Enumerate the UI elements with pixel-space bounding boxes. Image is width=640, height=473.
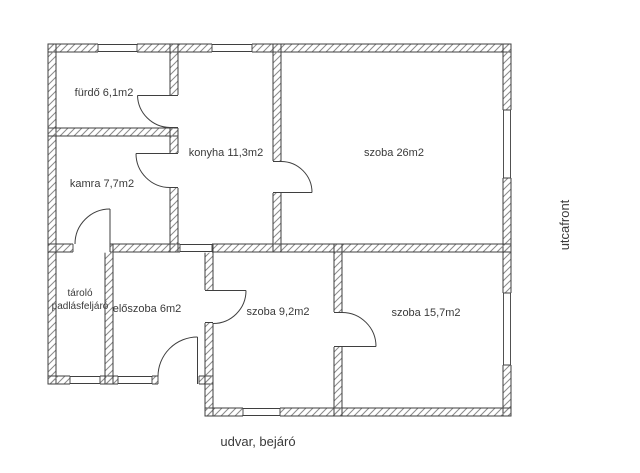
room-label-furdo: fürdő 6,1m2 xyxy=(75,87,134,99)
window-tarolo xyxy=(70,375,100,384)
wall-konyha-left xyxy=(170,44,178,252)
room-label-szoba92: szoba 9,2m2 xyxy=(247,306,310,318)
door-tarolo xyxy=(73,209,110,253)
wall-left xyxy=(48,44,56,384)
window-szoba92 xyxy=(243,407,280,416)
wall-konyha-szoba26 xyxy=(273,44,281,252)
room-label-kamra: kamra 7,7m2 xyxy=(70,178,134,190)
wall-eloszoba-szoba92 xyxy=(205,244,213,416)
door-szoba26 xyxy=(272,161,312,193)
room-label-szoba26: szoba 26m2 xyxy=(364,147,424,159)
window-konyha xyxy=(212,43,252,52)
label-utcafront: utcafront xyxy=(557,199,572,250)
window-eloszoba xyxy=(118,375,152,384)
windows xyxy=(70,43,512,416)
floor-plan-page: fürdő 6,1m2 kamra 7,7m2 konyha 11,3m2 sz… xyxy=(0,0,640,473)
walls xyxy=(48,44,511,416)
room-label-konyha: konyha 11,3m2 xyxy=(189,147,263,159)
door-szoba92 xyxy=(204,290,246,324)
label-udvar-bejaro: udvar, bejáró xyxy=(220,434,295,449)
door-kamra xyxy=(136,153,179,188)
room-label-tarolo-line2: padlásfeljáró xyxy=(52,301,109,312)
opening-konyha-eloszoba xyxy=(180,243,212,252)
window-szoba157 xyxy=(502,293,511,365)
window-furdo xyxy=(98,43,137,52)
room-label-eloszoba: előszoba 6m2 xyxy=(113,303,182,315)
door-szoba157 xyxy=(333,312,376,347)
floor-plan-drawing: fürdő 6,1m2 kamra 7,7m2 konyha 11,3m2 sz… xyxy=(0,0,640,473)
room-label-szoba157: szoba 15,7m2 xyxy=(391,307,460,319)
doors xyxy=(73,95,376,385)
door-furdo xyxy=(138,95,179,128)
window-szoba26 xyxy=(502,110,511,178)
door-entrance xyxy=(158,337,199,385)
wall-furdo-kamra xyxy=(48,128,178,136)
room-label-tarolo-line1: tároló xyxy=(67,288,92,299)
